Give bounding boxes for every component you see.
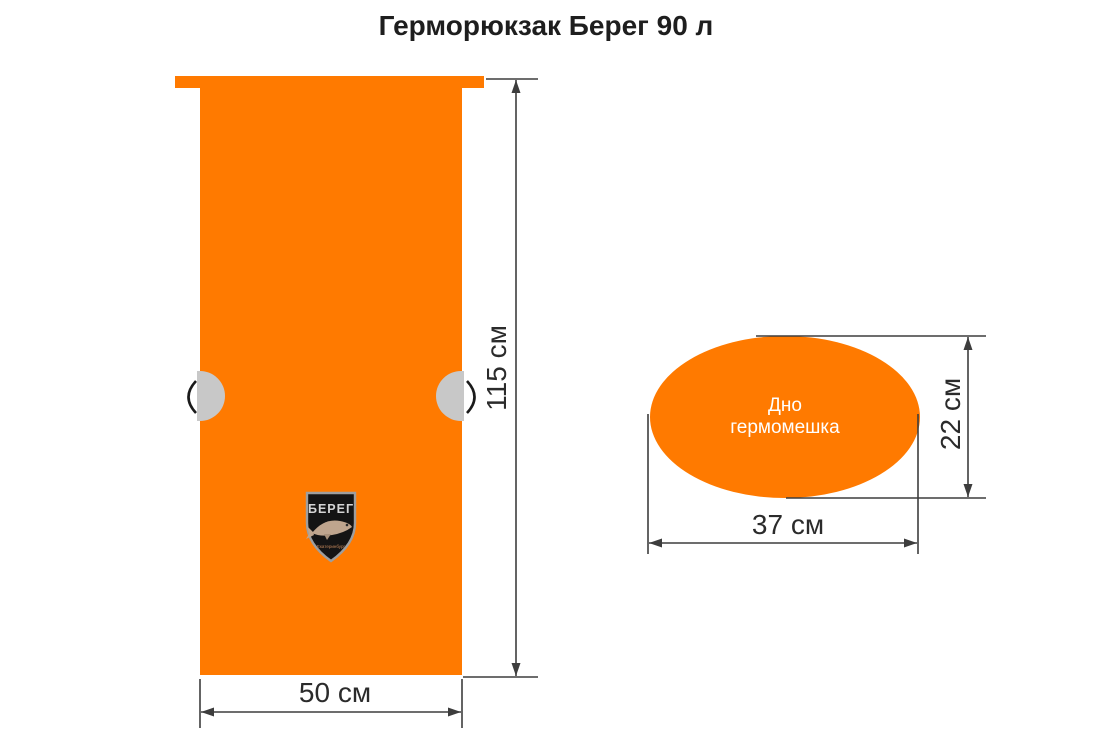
arrow-left-icon <box>649 539 662 548</box>
arrow-left-icon <box>201 708 214 717</box>
arrow-up-icon <box>512 80 521 93</box>
brand-shield-logo: БЕРЕГ Екатеринбург <box>300 489 362 565</box>
dimension-lines-layer <box>0 0 1100 733</box>
height-dimension-label: 115 см <box>481 325 513 411</box>
bag-front-body <box>200 76 462 675</box>
bag-bottom-ellipse: Дно гермомешка <box>650 336 920 498</box>
ellipse-height-dimension-label: 22 см <box>935 378 967 450</box>
bottom-view-label: Дно гермомешка <box>719 395 851 439</box>
diagram-canvas: Герморюкзак Берег 90 л БЕРЕГ Екатеринбур… <box>0 0 1100 733</box>
arrow-right-icon <box>904 539 917 548</box>
arrow-down-icon <box>964 484 973 497</box>
arrow-right-icon <box>448 708 461 717</box>
brand-name-text: БЕРЕГ <box>308 502 354 516</box>
hook-right-icon <box>467 381 475 413</box>
arrow-up-icon <box>964 337 973 350</box>
arrow-down-icon <box>512 663 521 676</box>
fish-eye <box>346 524 349 527</box>
hook-left-icon <box>189 381 197 413</box>
ellipse-width-dimension-label: 37 см <box>752 509 824 541</box>
page-title: Герморюкзак Берег 90 л <box>379 10 714 42</box>
brand-city-text: Екатеринбург <box>317 544 346 549</box>
width-dimension-label: 50 см <box>299 677 371 709</box>
